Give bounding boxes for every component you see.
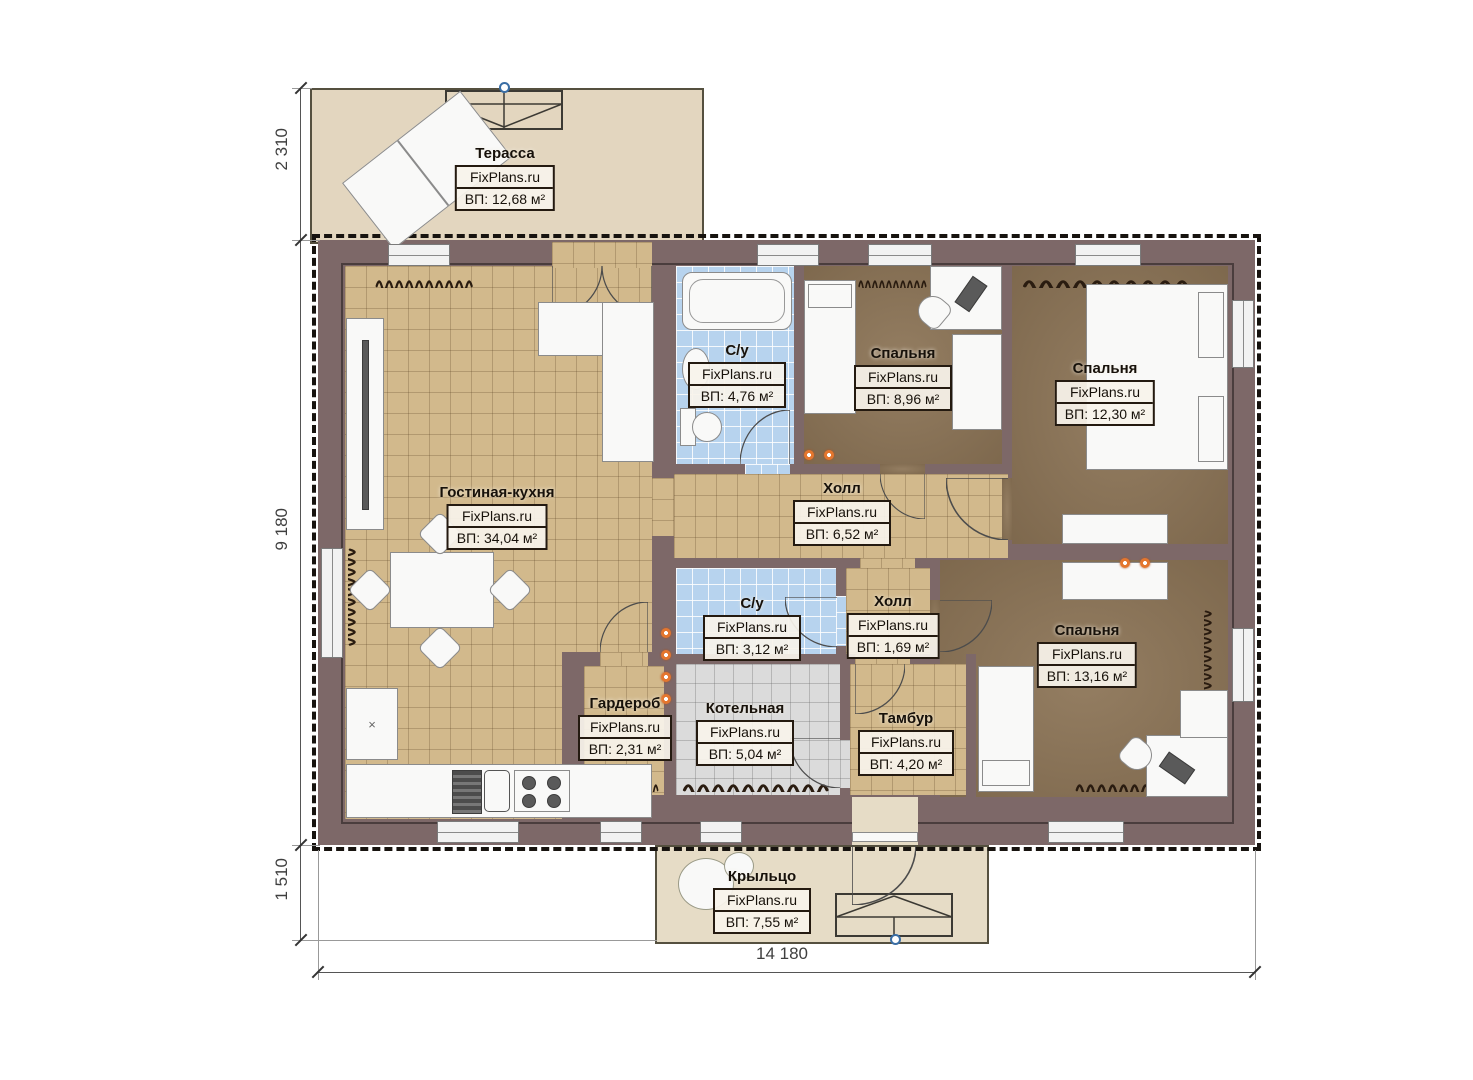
room-name: Холл (793, 480, 891, 497)
living-hall-opening (652, 478, 674, 536)
room-name: Тамбур (858, 710, 954, 727)
wall-strip (966, 654, 976, 797)
door-swing (946, 478, 1008, 540)
hall2-door-opening (860, 558, 915, 568)
room-label-bath1: С/у FixPlans.ru ВП: 4,76 м² (688, 342, 786, 408)
toilet-bowl (692, 412, 722, 442)
sofa-seat-side (602, 302, 654, 462)
room-area: ВП: 4,20 м² (860, 754, 952, 774)
room-area: ВП: 12,68 м² (457, 189, 553, 209)
room-label-terrace: Терасса FixPlans.ru ВП: 12,68 м² (455, 145, 555, 211)
tv-screen (362, 340, 369, 510)
room-label-hall1: Холл FixPlans.ru ВП: 6,52 м² (793, 480, 891, 546)
room-area: ВП: 4,76 м² (690, 386, 784, 406)
survey-point (499, 82, 510, 93)
room-area: ВП: 3,12 м² (705, 639, 799, 659)
door-swing (600, 602, 648, 652)
door-swing (940, 600, 992, 652)
room-name: Холл (847, 593, 940, 610)
room-label-living: Гостиная-кухня FixPlans.ru ВП: 34,04 м² (440, 484, 555, 550)
room-name: С/у (703, 595, 801, 612)
window (868, 244, 932, 266)
bath2-door-opening (836, 596, 846, 646)
brand: FixPlans.ru (1057, 382, 1153, 404)
room-name: Гардероб (578, 695, 672, 712)
bed1-door-opening (880, 464, 925, 474)
room-name: Спальня (1055, 360, 1155, 377)
room-name: С/у (688, 342, 786, 359)
brand: FixPlans.ru (856, 367, 950, 389)
window (757, 244, 819, 266)
room-area: ВП: 7,55 м² (715, 912, 809, 932)
dining-table (390, 552, 494, 628)
door-swing (740, 410, 790, 464)
wall-lamp (661, 672, 671, 682)
dimension-line-left (300, 88, 301, 940)
dim-house-width: 14 180 (756, 944, 808, 964)
dim-porch-depth: 1 510 (272, 858, 292, 901)
stove (514, 770, 570, 812)
window (600, 821, 642, 843)
wardrobe-cabinet (1062, 562, 1168, 600)
room-name: Гостиная-кухня (440, 484, 555, 501)
room-area: ВП: 13,16 м² (1039, 666, 1135, 686)
wardrobe-door-opening (600, 652, 648, 666)
wall-lamp (661, 650, 671, 660)
floor-plan-canvas: × Терасса FixPlans.ru ВП: 12, (0, 0, 1473, 1080)
brand: FixPlans.ru (449, 506, 545, 528)
window (1048, 821, 1124, 843)
brand: FixPlans.ru (1039, 644, 1135, 666)
window (1232, 300, 1254, 368)
room-name: Спальня (854, 345, 952, 362)
window (1232, 628, 1254, 702)
extension-line (1255, 850, 1256, 980)
room-area: ВП: 5,04 м² (698, 744, 792, 764)
entry-door-leaf (852, 832, 918, 842)
dim-terrace-depth: 2 310 (272, 128, 292, 171)
corner-desk (1180, 690, 1228, 738)
room-label-tambour: Тамбур FixPlans.ru ВП: 4,20 м² (858, 710, 954, 776)
bed-pillow (1198, 292, 1224, 358)
bed-pillow (808, 284, 852, 308)
door-swing (855, 664, 905, 714)
brand: FixPlans.ru (457, 167, 553, 189)
room-label-bed3: Спальня FixPlans.ru ВП: 13,16 м² (1037, 622, 1137, 688)
radiator (858, 276, 928, 288)
dimension-line-bottom (318, 972, 1255, 973)
kitchen-sink (484, 770, 510, 812)
extension-line (318, 850, 319, 980)
room-name: Крыльцо (713, 868, 811, 885)
brand: FixPlans.ru (860, 732, 952, 754)
brand: FixPlans.ru (795, 502, 889, 524)
room-name: Терасса (455, 145, 555, 162)
extension-line (292, 940, 657, 941)
door-swing (790, 738, 840, 788)
bed-pillow (982, 760, 1030, 786)
window (388, 244, 450, 266)
brand: FixPlans.ru (715, 890, 809, 912)
radiator (1204, 610, 1216, 700)
room-name: Спальня (1037, 622, 1137, 639)
window (437, 821, 519, 843)
room-label-hall2: Холл FixPlans.ru ВП: 1,69 м² (847, 593, 940, 659)
wall-lamp (661, 628, 671, 638)
survey-point (890, 934, 901, 945)
room-area: ВП: 34,04 м² (449, 528, 545, 548)
door-swing (852, 845, 916, 905)
room-label-bed1: Спальня FixPlans.ru ВП: 8,96 м² (854, 345, 952, 411)
extension-line (292, 240, 320, 241)
wardrobe-cabinet (1062, 514, 1168, 544)
room-area: ВП: 6,52 м² (795, 524, 889, 544)
room-area: ВП: 8,96 м² (856, 389, 950, 409)
brand: FixPlans.ru (698, 722, 792, 744)
room-label-porch: Крыльцо FixPlans.ru ВП: 7,55 м² (713, 868, 811, 934)
room-label-bath2: С/у FixPlans.ru ВП: 3,12 м² (703, 595, 801, 661)
radiator (375, 276, 475, 288)
bath1-door-opening (745, 464, 790, 474)
extension-line (292, 845, 320, 846)
wall-lamp (804, 450, 814, 460)
window (1075, 244, 1141, 266)
room-label-wardrobe: Гардероб FixPlans.ru ВП: 2,31 м² (578, 695, 672, 761)
bed-pillow (1198, 396, 1224, 462)
brand: FixPlans.ru (690, 364, 784, 386)
window (700, 821, 742, 843)
room-area: ВП: 1,69 м² (849, 637, 938, 657)
brand: FixPlans.ru (580, 717, 670, 739)
room-area: ВП: 12,30 м² (1057, 404, 1153, 424)
bathtub (682, 272, 792, 330)
boiler-door-opening (840, 740, 850, 788)
wall-lamp (1120, 558, 1130, 568)
brand: FixPlans.ru (705, 617, 799, 639)
fridge: × (346, 688, 398, 760)
oven (452, 770, 482, 814)
room-name: Котельная (696, 700, 794, 717)
dim-house-depth: 9 180 (272, 508, 292, 551)
wall-lamp (1140, 558, 1150, 568)
room-area: ВП: 2,31 м² (580, 739, 670, 759)
window (321, 548, 343, 658)
terrace-door-opening (552, 242, 652, 268)
wall-lamp (824, 450, 834, 460)
wardrobe-cabinet (952, 334, 1002, 430)
brand: FixPlans.ru (849, 615, 938, 637)
room-label-boiler: Котельная FixPlans.ru ВП: 5,04 м² (696, 700, 794, 766)
room-label-bed2: Спальня FixPlans.ru ВП: 12,30 м² (1055, 360, 1155, 426)
